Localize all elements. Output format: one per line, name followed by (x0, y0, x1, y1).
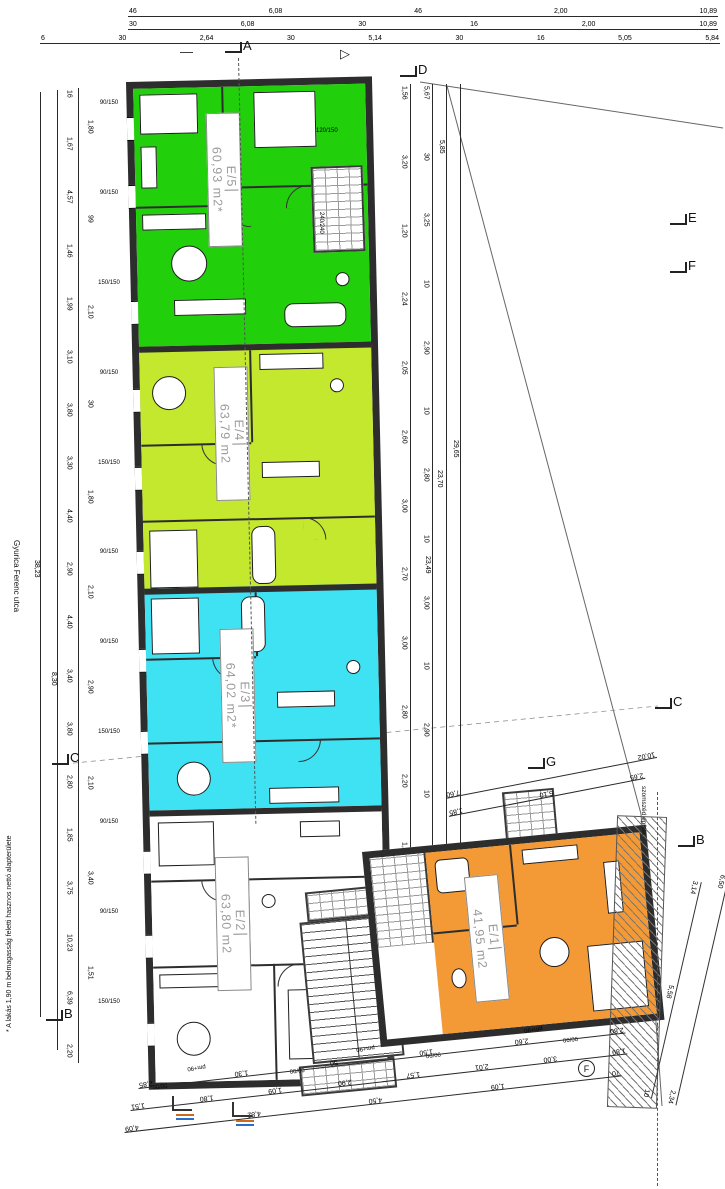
dim-value: 6,08 (268, 8, 284, 16)
table-symbol (152, 376, 187, 411)
dim-value: 2,80 (66, 775, 73, 789)
dim-value: 3,40 (66, 669, 73, 683)
section-marker-c-left: C (52, 750, 79, 765)
door-swing (277, 963, 301, 987)
dim-value: 1,80 (87, 120, 94, 134)
door-swing (298, 739, 322, 763)
dim-value: 10 (642, 1089, 651, 1098)
dim-value: 10 (423, 407, 430, 415)
sofa-symbol (277, 690, 335, 707)
dim-value: 2,65 (628, 770, 645, 781)
dim-value: 2,20 (401, 774, 408, 788)
dim-value: 1,80 (87, 490, 94, 504)
dim-value: 30 (357, 21, 367, 29)
dim-value: 5,58 (664, 984, 674, 999)
dim-value: 10,23 (66, 934, 73, 952)
apartment-e2-label: E/2 63,80 m2 (215, 856, 252, 991)
dim-value: 6,50 (716, 874, 725, 889)
detail-marker-f: F (578, 1060, 595, 1077)
dim-value: 1,85 (66, 828, 73, 842)
neighbor-label: szomszéd épület (640, 786, 647, 835)
door-swing (303, 517, 327, 541)
footnote: * A lakás 1,90 m belmagasság feletti has… (6, 835, 13, 1032)
dim-value: 3,25 (423, 213, 430, 227)
dim-value: 3,20 (401, 155, 408, 169)
top-dim-row-3: 6302,64305,1430165,055,84 (40, 33, 720, 44)
level-marker (232, 1102, 252, 1117)
sink-symbol (261, 894, 275, 908)
section-marker-b-right: B (678, 832, 705, 847)
apartment-e4: E/4 63,79 m2 (139, 342, 376, 589)
sofa-symbol (142, 213, 206, 230)
sink-symbol (335, 272, 349, 286)
dim-value: 10 (423, 535, 430, 543)
dim-value: 6,08 (240, 21, 256, 29)
right-total-dim: 23,70 (436, 470, 443, 488)
dim-value: 2,60 (513, 1035, 529, 1045)
dim-value: 10 (423, 662, 430, 670)
dim-value: 4,40 (66, 509, 73, 523)
floorplan-page: 466,08462,0010,89 306,0830162,0010,89 63… (0, 0, 725, 1189)
bed-symbol (139, 93, 198, 134)
level-marker (172, 1096, 192, 1111)
dim-value: 10,89 (698, 21, 718, 29)
dim-value: 4,57 (66, 190, 73, 204)
dim-value: 2,64 (199, 35, 215, 43)
dim-value: 16 (66, 90, 73, 98)
dim-value: 4,50 (367, 1095, 383, 1105)
dim-value: 1,57 (405, 1069, 421, 1079)
dim-value: 2,10 (87, 585, 94, 599)
window-size-label: 90/150 (100, 909, 118, 915)
wc-symbol (451, 968, 468, 989)
window-size-label: 120/150 (316, 128, 338, 134)
section-marker-d: D (400, 62, 427, 77)
dim-value: 5,05 (617, 35, 633, 43)
door-swing (285, 185, 309, 209)
street-label: Gyurica Ferenc utca (12, 540, 21, 612)
section-arrow: — (180, 44, 193, 59)
bed-symbol (253, 91, 316, 148)
kitchen-counter-symbol (259, 353, 323, 370)
window-size-label: 90/150 (100, 100, 118, 106)
dim-value: 2,70 (401, 567, 408, 581)
dim-value: 3,00 (401, 499, 408, 513)
dim-value: 6 (40, 35, 46, 43)
dim-value: 1,89 (611, 1045, 627, 1055)
window-size-label: 150/150 (98, 280, 120, 286)
terrace-tiles (311, 165, 366, 253)
top-dim-row-1: 466,08462,0010,89 (128, 6, 718, 17)
left-total-dim: 38,23 (33, 560, 40, 578)
dim-value: 3,80 (66, 403, 73, 417)
top-dim-row-2: 306,0830162,0010,89 (128, 19, 718, 30)
sink-symbol (330, 378, 344, 392)
dim-value: 2,00 (553, 8, 569, 16)
section-marker-f: F (670, 258, 696, 273)
dim-value: 2,60 (401, 430, 408, 444)
dim-line (40, 92, 41, 1017)
table-symbol (176, 1021, 211, 1056)
dim-value: 30 (423, 153, 430, 161)
wardrobe-symbol (140, 146, 157, 188)
window-size-label: 90/150 (100, 819, 118, 825)
apartment-e1-label: E/1 41,95 m2 (464, 874, 510, 1003)
dim-value: 2,24 (401, 292, 408, 306)
right-dim-chain-2: 5,67303,25102,90102,80103,00102,90102,85 (420, 86, 432, 864)
dim-value: 3,00 (423, 596, 430, 610)
dim-value: 1,67 (66, 137, 73, 151)
table-symbol (171, 245, 208, 282)
dim-value: 3,40 (87, 871, 94, 885)
section-marker-g: G (528, 754, 556, 769)
dim-value: 3,00 (401, 636, 408, 650)
section-arrow: ▷ (340, 46, 350, 62)
right-dim: 5,85 (438, 140, 445, 154)
dim-value: 30 (128, 21, 138, 29)
dim-value: 46 (413, 8, 423, 16)
dim-value: 7,60 (444, 787, 461, 798)
window-size-label: 90/150 (100, 639, 118, 645)
dim-value: 30 (454, 35, 464, 43)
dim-value: 5,14 (367, 35, 383, 43)
window-size-label: 90/150 (100, 370, 118, 376)
dim-value: 2,01 (473, 1061, 489, 1071)
dim-value: 1,50 (418, 1046, 434, 1056)
plot-dashed-line (657, 792, 658, 1186)
dim-value: 46 (128, 8, 138, 16)
dim-value: 70 (611, 1067, 622, 1076)
dim-value: 2,90 (423, 341, 430, 355)
hall-tiles (370, 853, 434, 948)
sofa-symbol (262, 461, 320, 478)
dim-value: 16 (469, 21, 479, 29)
dim-line (78, 88, 79, 1063)
dim-value: 16 (536, 35, 546, 43)
dim-value: 2,34 (666, 1090, 676, 1105)
dim-value: 30 (87, 400, 94, 408)
dim-value: 2,80 (401, 705, 408, 719)
dim-value: 2,85 (138, 1078, 154, 1088)
dim-value: 3,80 (66, 722, 73, 736)
dim-value: 1,56 (401, 86, 408, 100)
sink-symbol (346, 660, 360, 674)
window-size-label: 90/150 (100, 190, 118, 196)
kitchen-counter-symbol (159, 973, 219, 988)
dim-value: 2,90 (66, 562, 73, 576)
dim-value: 2,90 (336, 1077, 352, 1087)
dim-value: 1,46 (66, 244, 73, 258)
dim-value: 50 (328, 1057, 339, 1066)
window-size-label: 150/150 (98, 729, 120, 735)
dim-value: 10 (423, 790, 430, 798)
dim-value: 1,85 (447, 805, 464, 816)
left-total-dim: 8,30 (50, 672, 57, 686)
dim-value: 30 (286, 35, 296, 43)
dim-value: 30 (117, 35, 127, 43)
bed-symbol (151, 597, 200, 654)
bathtub-symbol (251, 526, 276, 585)
window-size-label: 150/150 (98, 460, 120, 466)
window-size-label: 90/150 (100, 549, 118, 555)
dim-value: 2,90 (87, 680, 94, 694)
dim-value: 2,20 (66, 1044, 73, 1058)
left-dim-chain: 161,674,571,461,993,103,803,304,402,904,… (62, 90, 76, 1058)
right-total-dim: 29,65 (452, 440, 459, 458)
dim-value: 1,09 (267, 1085, 283, 1095)
dim-value: 3,14 (689, 880, 699, 895)
left-window-labels: 90/15090/150150/15090/150150/15090/15090… (101, 100, 117, 1005)
dim-value: 99 (87, 215, 94, 223)
dim-value: 2,90 (423, 723, 430, 737)
dim-value: 1,30 (233, 1067, 249, 1077)
dim-value: 5,10 (538, 787, 555, 798)
apartment-e5-label: E/5 60,93 m2* (206, 112, 243, 247)
dim-value: 4,40 (66, 615, 73, 629)
kitchen-counter-symbol (522, 844, 579, 864)
wardrobe-symbol (300, 820, 340, 837)
section-marker-a: A (225, 38, 252, 53)
section-marker-c-right: C (655, 694, 682, 709)
kitchen-counter-symbol (174, 298, 246, 316)
dim-value: 3,10 (66, 350, 73, 364)
left-inner-dim-chain: 1,80992,10301,802,102,902,103,401,51 (84, 120, 96, 980)
dim-line (460, 84, 461, 874)
dim-value: 3,75 (66, 881, 73, 895)
dim-value: 3,00 (542, 1053, 558, 1063)
dim-value: 1,99 (66, 297, 73, 311)
dim-value: 6,39 (66, 991, 73, 1005)
kitchen-counter-symbol (269, 786, 339, 804)
dim-line (57, 90, 58, 1050)
dim-line (432, 84, 433, 864)
dim-line (446, 84, 447, 869)
window-size-label: 150/150 (98, 999, 120, 1005)
section-marker-b-left: B (46, 1006, 73, 1021)
bed-symbol (158, 821, 215, 866)
right-dim-chain-1: 1,563,201,202,242,052,603,002,703,002,80… (398, 86, 410, 856)
dim-value: 1,20 (401, 224, 408, 238)
right-total-dim: 23,49 (424, 556, 431, 574)
table-symbol (538, 936, 571, 969)
dim-value: 5,67 (423, 86, 430, 100)
dim-value: 4,09 (124, 1122, 140, 1132)
bed-symbol (149, 530, 198, 589)
bathtub-symbol (284, 302, 347, 327)
apartment-e3: E/3 64,02 m2* (145, 583, 382, 810)
dim-value: 3,30 (66, 456, 73, 470)
section-marker-e: E (670, 210, 697, 225)
dim-value: 2,00 (581, 21, 597, 29)
dim-value: 10,89 (698, 8, 718, 16)
window-size-label: 240/240 (318, 212, 324, 234)
dim-value: 2,80 (423, 468, 430, 482)
dim-value: 2,05 (401, 361, 408, 375)
dim-value: 10 (423, 280, 430, 288)
dim-value: 10,02 (636, 749, 657, 761)
dim-value: 5,84 (704, 35, 720, 43)
dim-line (410, 84, 411, 859)
dim-value: 1,51 (87, 966, 94, 980)
dim-value: 1,51 (130, 1100, 146, 1110)
dim-value: 2,10 (87, 305, 94, 319)
dim-value: 2,80 (609, 1025, 625, 1035)
dim-value: 1,80 (198, 1092, 214, 1102)
dim-value: 2,10 (87, 776, 94, 790)
table-symbol (176, 761, 211, 796)
dim-value: 1,09 (489, 1081, 505, 1091)
